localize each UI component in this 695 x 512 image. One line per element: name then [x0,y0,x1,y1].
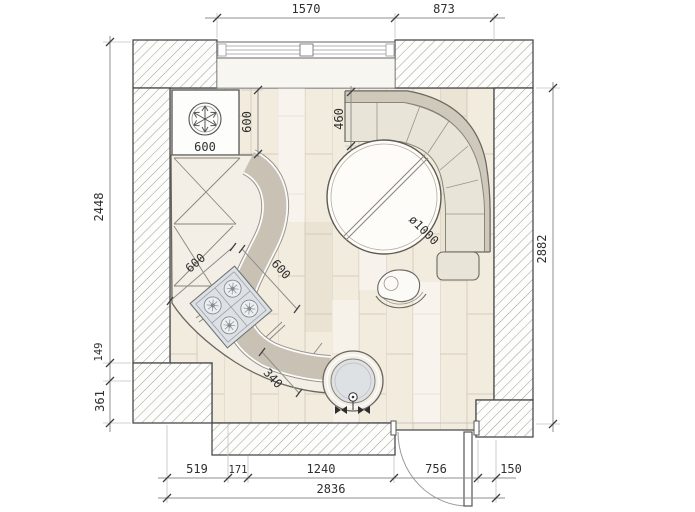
dim-left-lower: 361 [93,390,107,412]
wall-top-left [133,40,217,88]
dim-right-room: 2882 [535,235,549,264]
floor-plan-screenshot: 600 [0,0,695,512]
bench-end-pad [437,252,479,280]
dim-top-window: 1570 [292,2,321,16]
dim-bottom-1: 519 [186,462,208,476]
wall-left-step [133,363,212,423]
wall-bottom [212,423,395,455]
dim-left-step: 149 [93,343,105,362]
dim-bottom-2: 171 [229,464,248,476]
fridge-width-dim: 600 [194,140,216,154]
dim-bench-seat: 460 [332,108,346,130]
dim-left-wall: 2448 [92,193,106,222]
window [217,42,395,88]
door-jamb-right [474,421,479,435]
dim-top-wall: 873 [433,2,455,16]
dim-bottom-3: 1240 [307,462,336,476]
floor-plan-canvas: 600 [0,0,695,512]
dim-bottom-5: 150 [500,462,522,476]
wall-left [133,88,170,363]
fridge: 600 [172,90,239,155]
dim-bottom-total: 2836 [317,482,346,496]
dim-bottom-door: 756 [425,462,447,476]
door-leaf [464,432,472,506]
wall-top-right [395,40,533,88]
dining-table: ø1000 [327,140,442,254]
window-icon [300,44,313,56]
wall-bottom-right [476,400,533,437]
dim-fridge-depth: 600 [240,111,254,133]
door-jamb-left [391,421,396,435]
wall-right [494,88,533,400]
window-sill [217,58,395,88]
